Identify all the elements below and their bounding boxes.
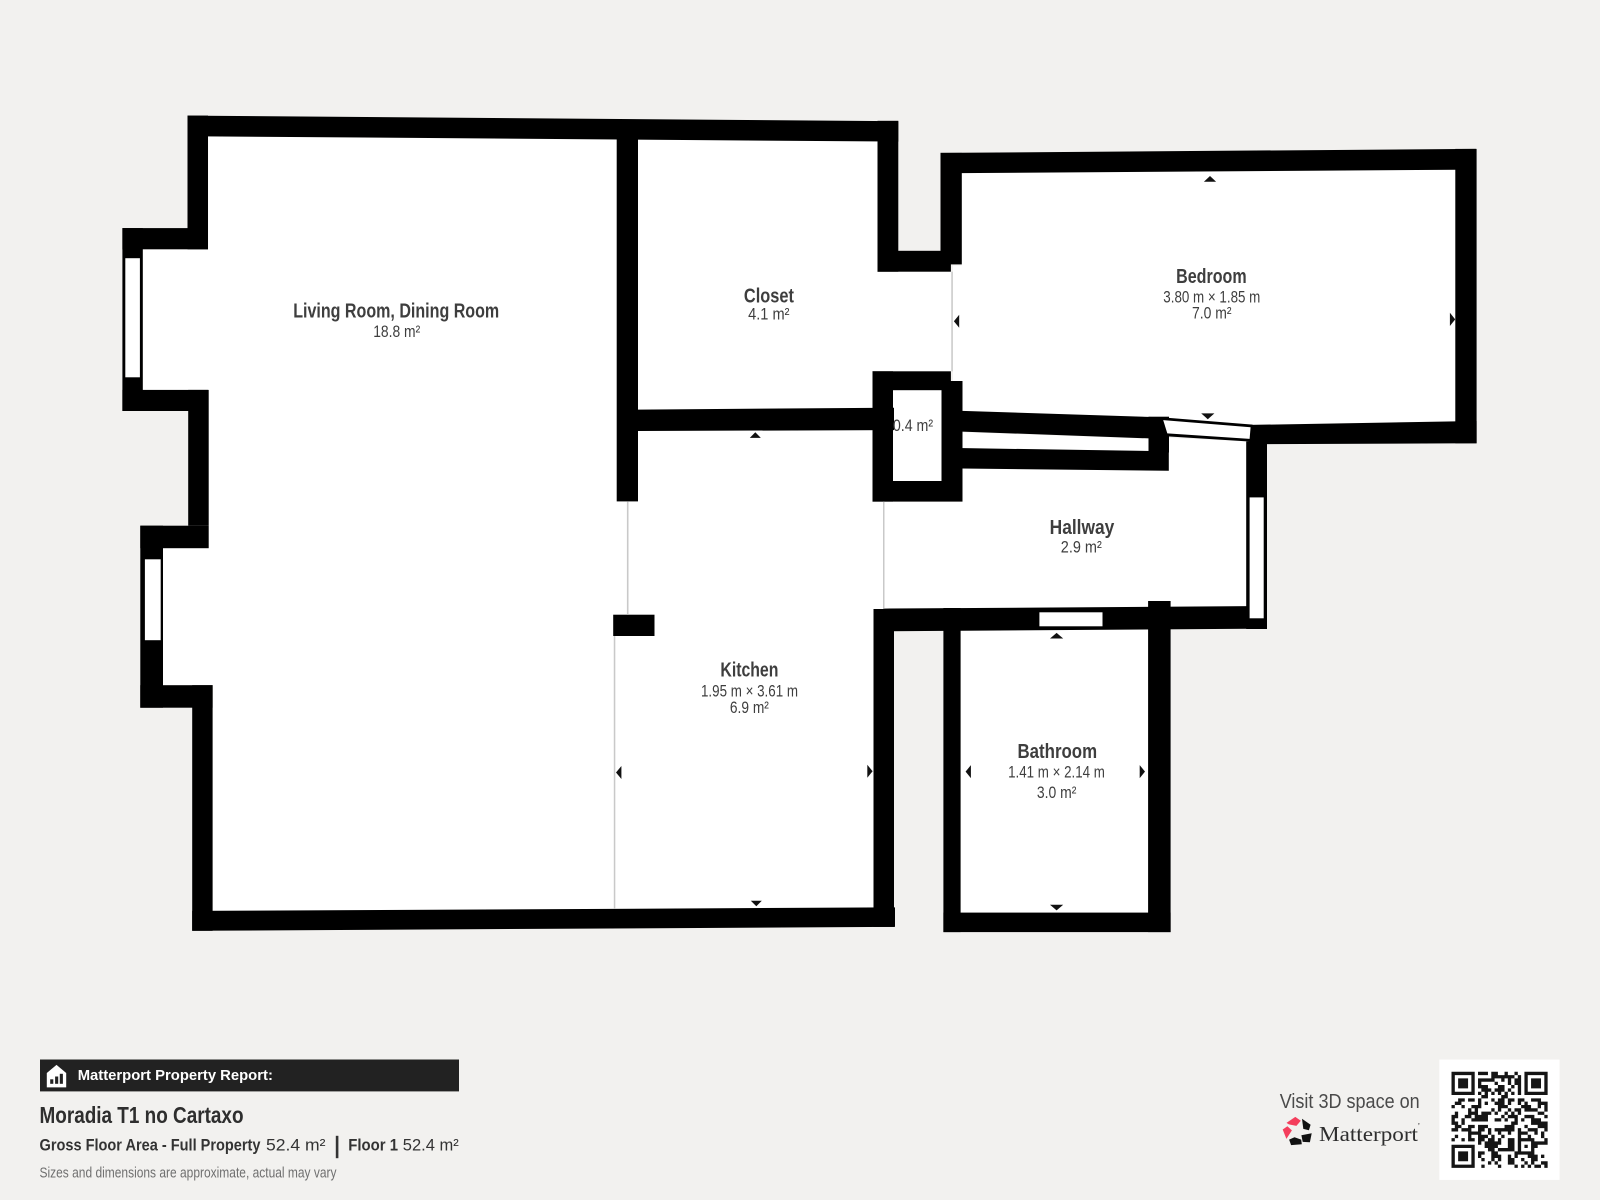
svg-text:18.8 m²: 18.8 m² [373,322,420,341]
svg-text:52.4 m²: 52.4 m² [403,1135,459,1154]
svg-text:3.0 m²: 3.0 m² [1037,783,1077,802]
svg-text:4.1 m²: 4.1 m² [748,305,790,324]
svg-text:0.4 m²: 0.4 m² [893,416,934,435]
svg-text:2.9 m²: 2.9 m² [1061,537,1102,556]
svg-text:Bathroom: Bathroom [1018,741,1098,763]
svg-text:Bedroom: Bedroom [1176,266,1247,288]
svg-text:Hallway: Hallway [1050,517,1115,539]
svg-text:Kitchen: Kitchen [720,659,778,681]
svg-text:1.41 m × 2.14 m: 1.41 m × 2.14 m [1008,763,1105,782]
svg-text:Gross Floor Area - Full Proper: Gross Floor Area - Full Property [40,1135,261,1154]
svg-text:Moradia T1 no Cartaxo: Moradia T1 no Cartaxo [40,1102,244,1128]
svg-text:52.4 m²: 52.4 m² [266,1135,326,1154]
svg-text:’: ’ [1418,1122,1421,1131]
svg-text:Matterport: Matterport [1319,1122,1418,1146]
svg-text:6.9 m²: 6.9 m² [730,698,769,717]
svg-text:Living Room, Dining Room: Living Room, Dining Room [293,301,499,323]
svg-text:Matterport Property Report:: Matterport Property Report: [78,1067,273,1084]
svg-text:Floor 1: Floor 1 [348,1135,398,1154]
svg-text:Visit 3D space on: Visit 3D space on [1280,1091,1420,1113]
svg-text:Sizes and dimensions are appro: Sizes and dimensions are approximate, ac… [40,1164,337,1181]
svg-text:7.0 m²: 7.0 m² [1192,304,1232,323]
